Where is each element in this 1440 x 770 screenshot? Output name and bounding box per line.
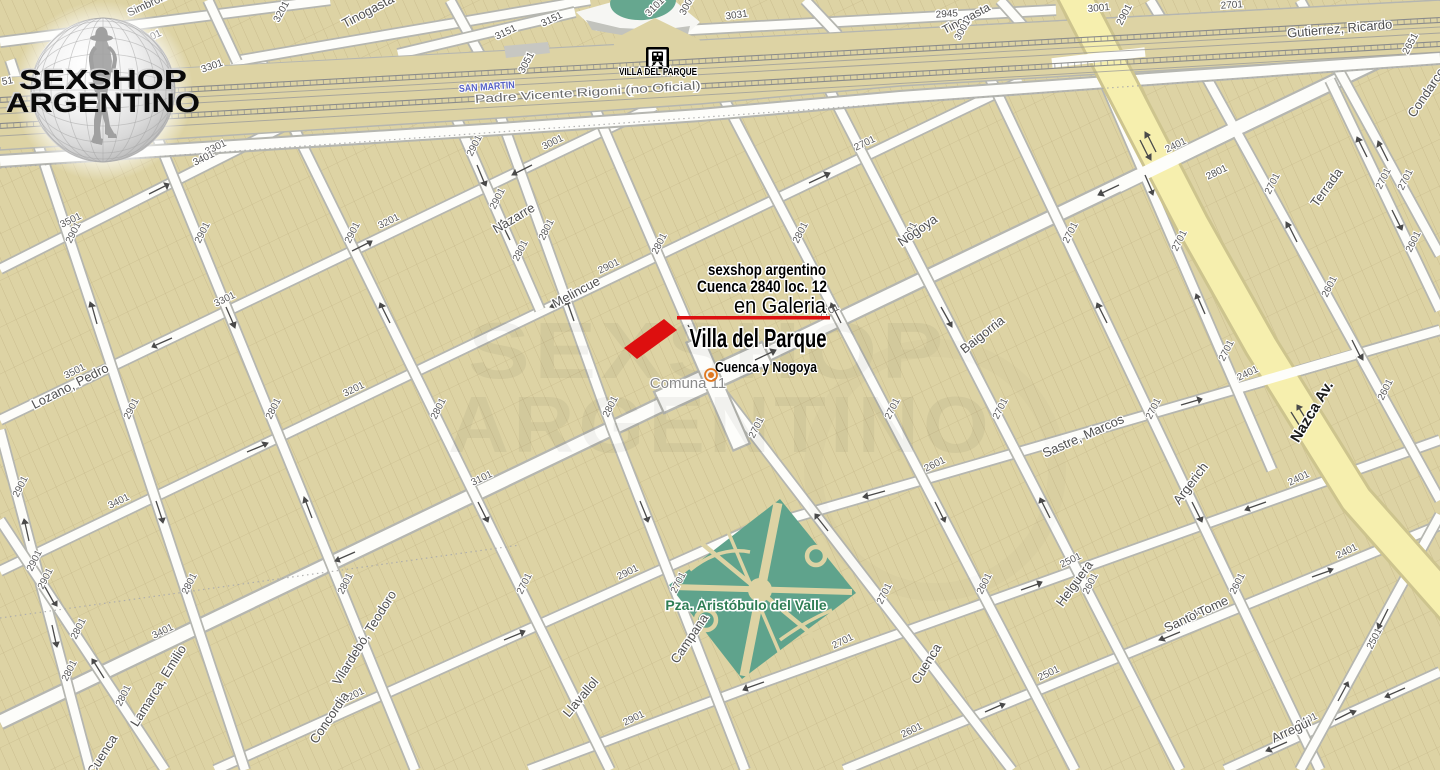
- svg-text:VILLA DEL PARQUE: VILLA DEL PARQUE: [619, 67, 697, 78]
- svg-text:3001: 3001: [1087, 2, 1111, 15]
- svg-text:Comuna 11: Comuna 11: [650, 375, 726, 392]
- svg-text:en Galeria: en Galeria: [734, 293, 827, 318]
- svg-text:Cuenca y Nogoya: Cuenca y Nogoya: [715, 360, 818, 376]
- svg-text:2945: 2945: [935, 8, 958, 21]
- svg-text:2701: 2701: [1220, 0, 1243, 12]
- svg-text:Villa del Parque: Villa del Parque: [690, 323, 827, 353]
- svg-text:Pza. Aristóbulo del Valle: Pza. Aristóbulo del Valle: [665, 597, 827, 613]
- svg-text:ARGENTINO: ARGENTINO: [448, 380, 993, 469]
- svg-text:ARGENTINO: ARGENTINO: [6, 88, 200, 118]
